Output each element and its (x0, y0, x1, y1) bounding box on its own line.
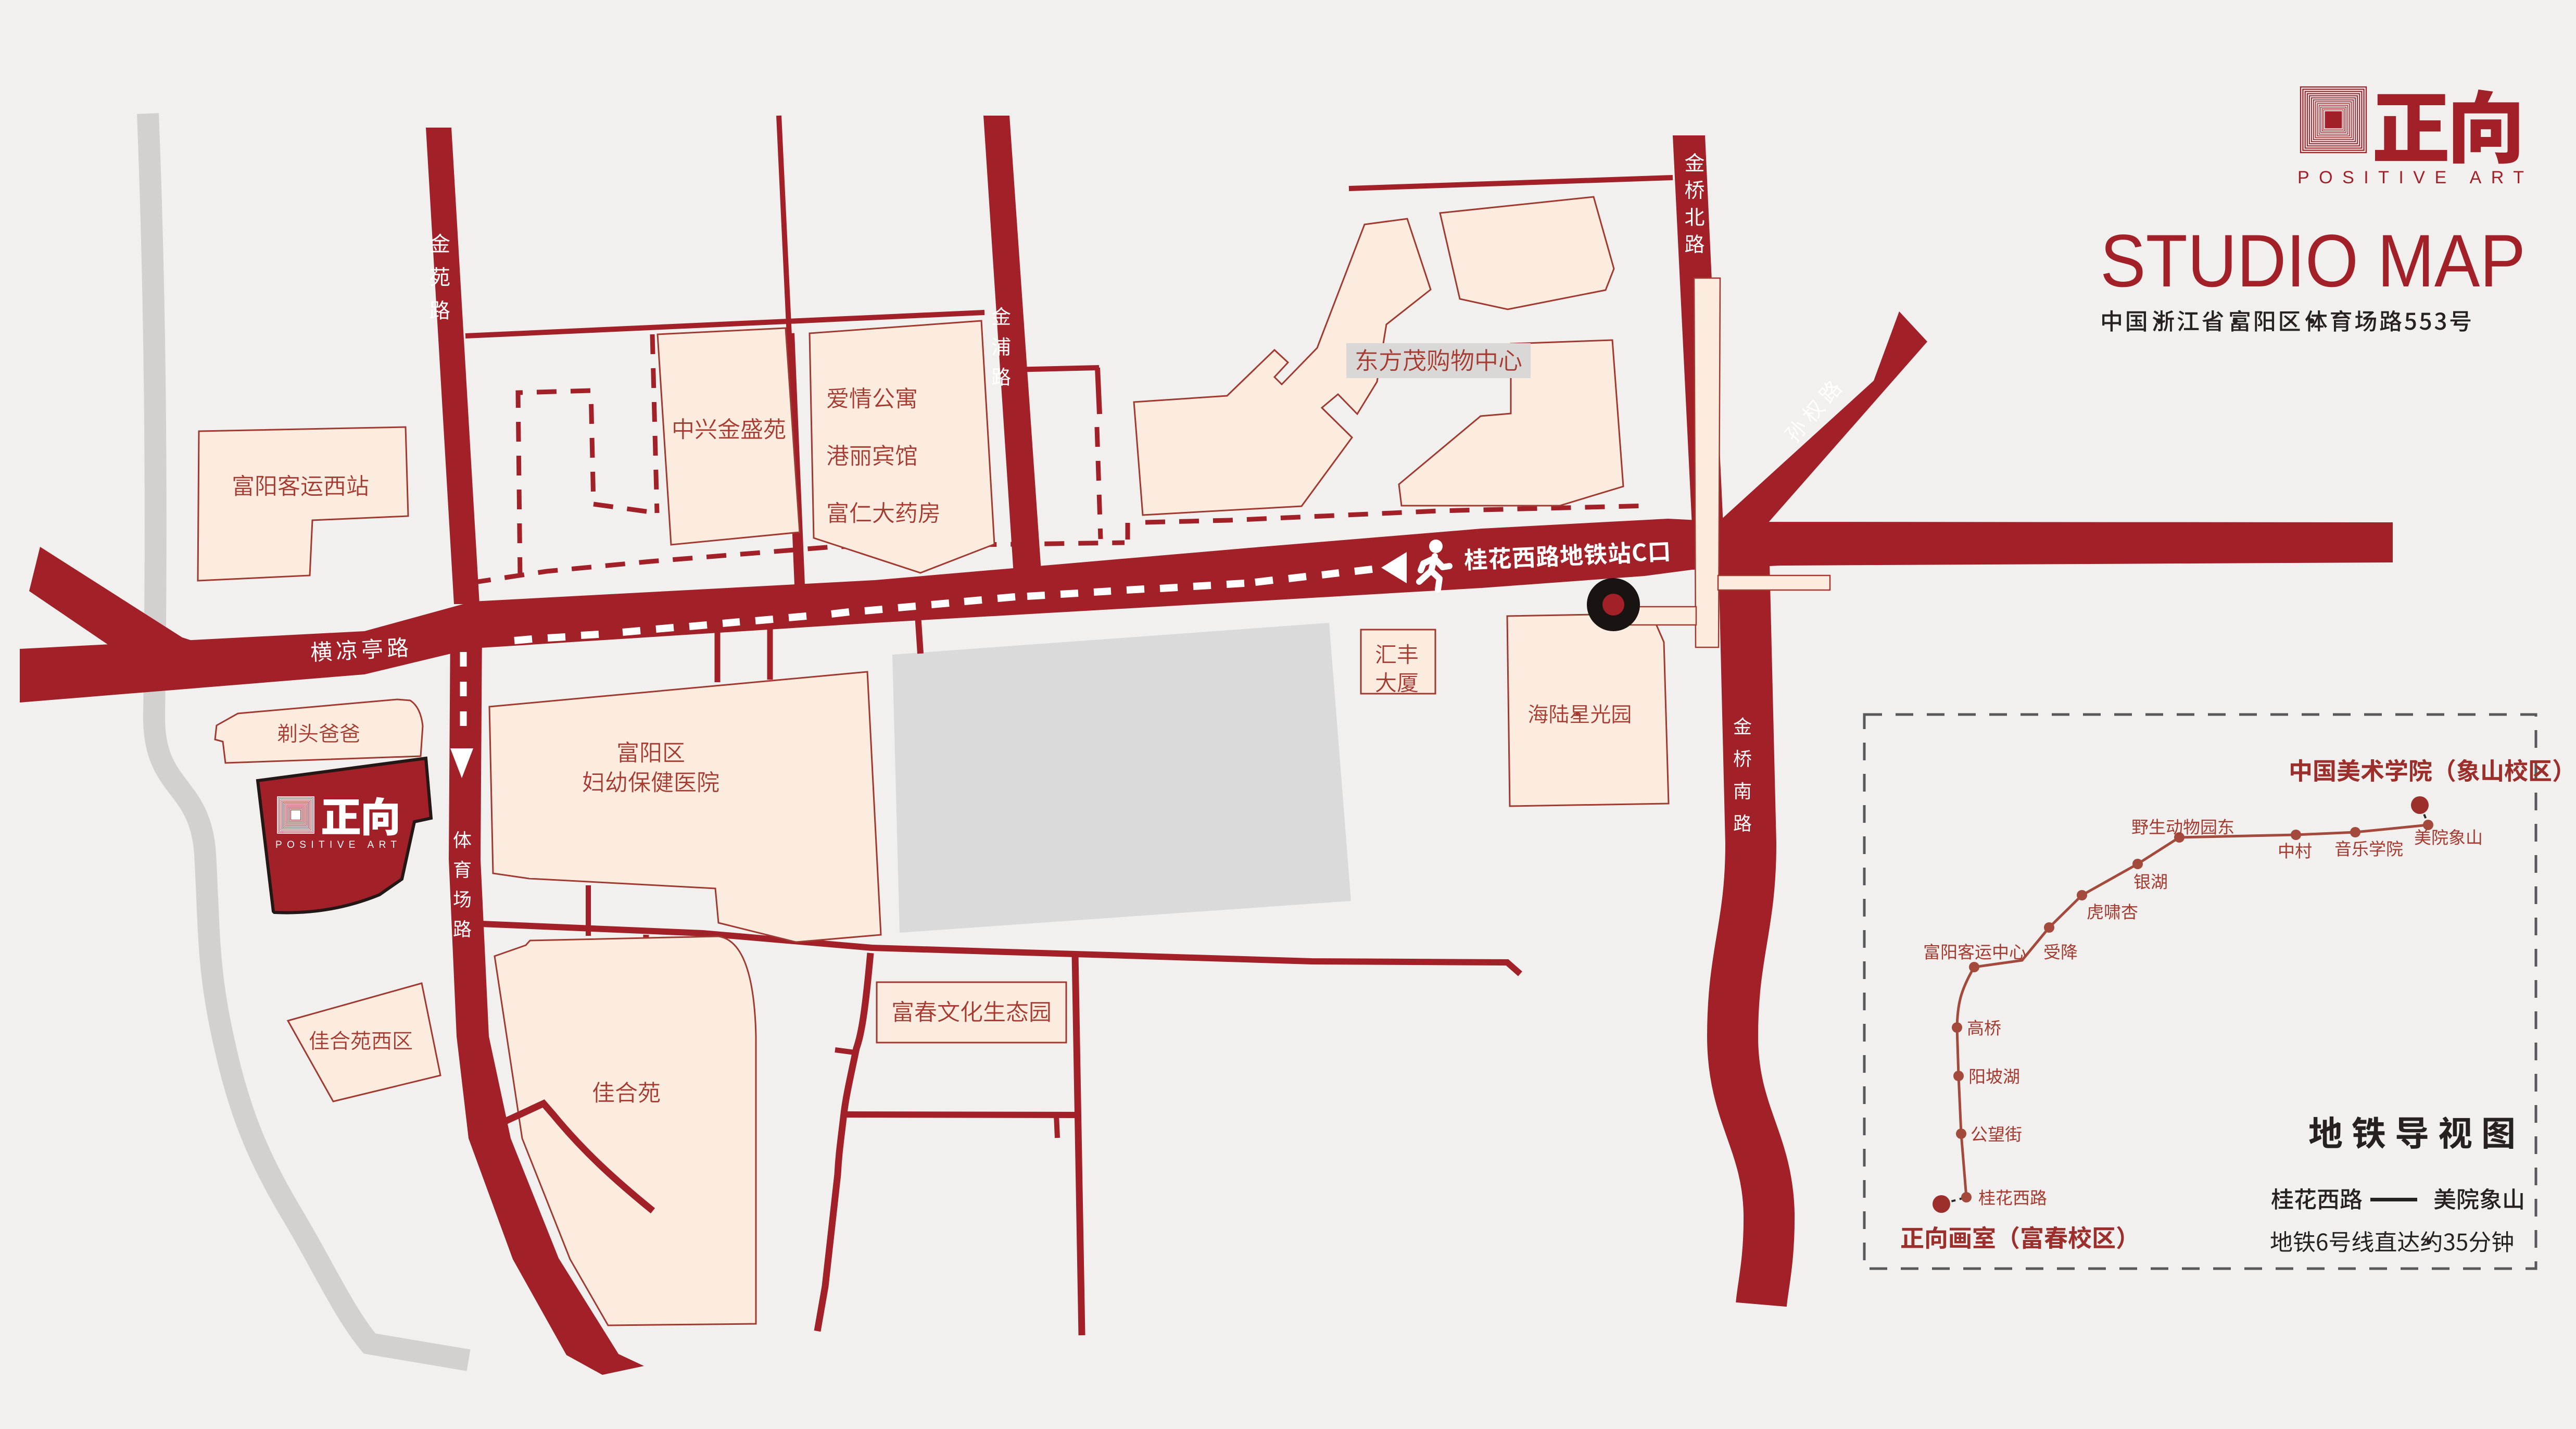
svg-text:STUDIO MAP: STUDIO MAP (2100, 220, 2526, 303)
